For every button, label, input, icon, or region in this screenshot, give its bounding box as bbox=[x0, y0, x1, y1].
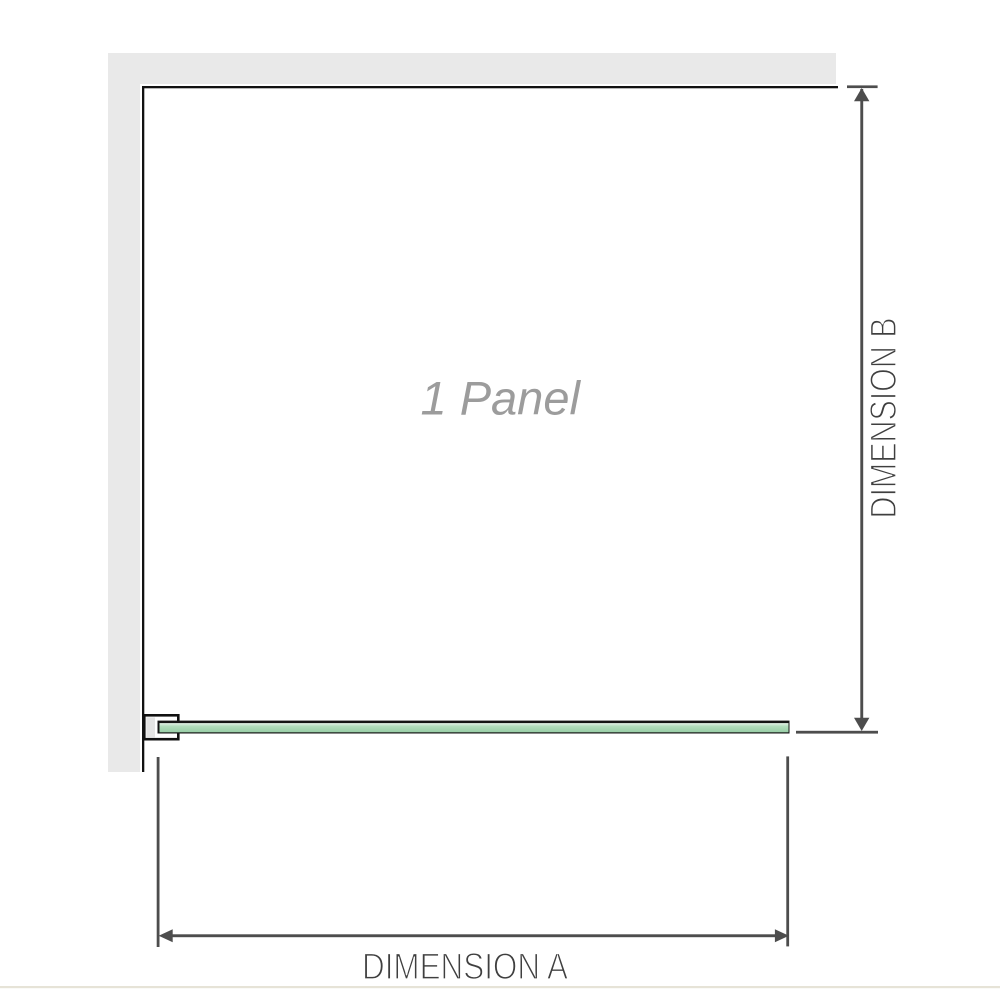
svg-text:1 Panel: 1 Panel bbox=[421, 371, 582, 424]
svg-text:DIMENSION B: DIMENSION B bbox=[862, 318, 904, 519]
svg-text:DIMENSION A: DIMENSION A bbox=[362, 945, 568, 987]
